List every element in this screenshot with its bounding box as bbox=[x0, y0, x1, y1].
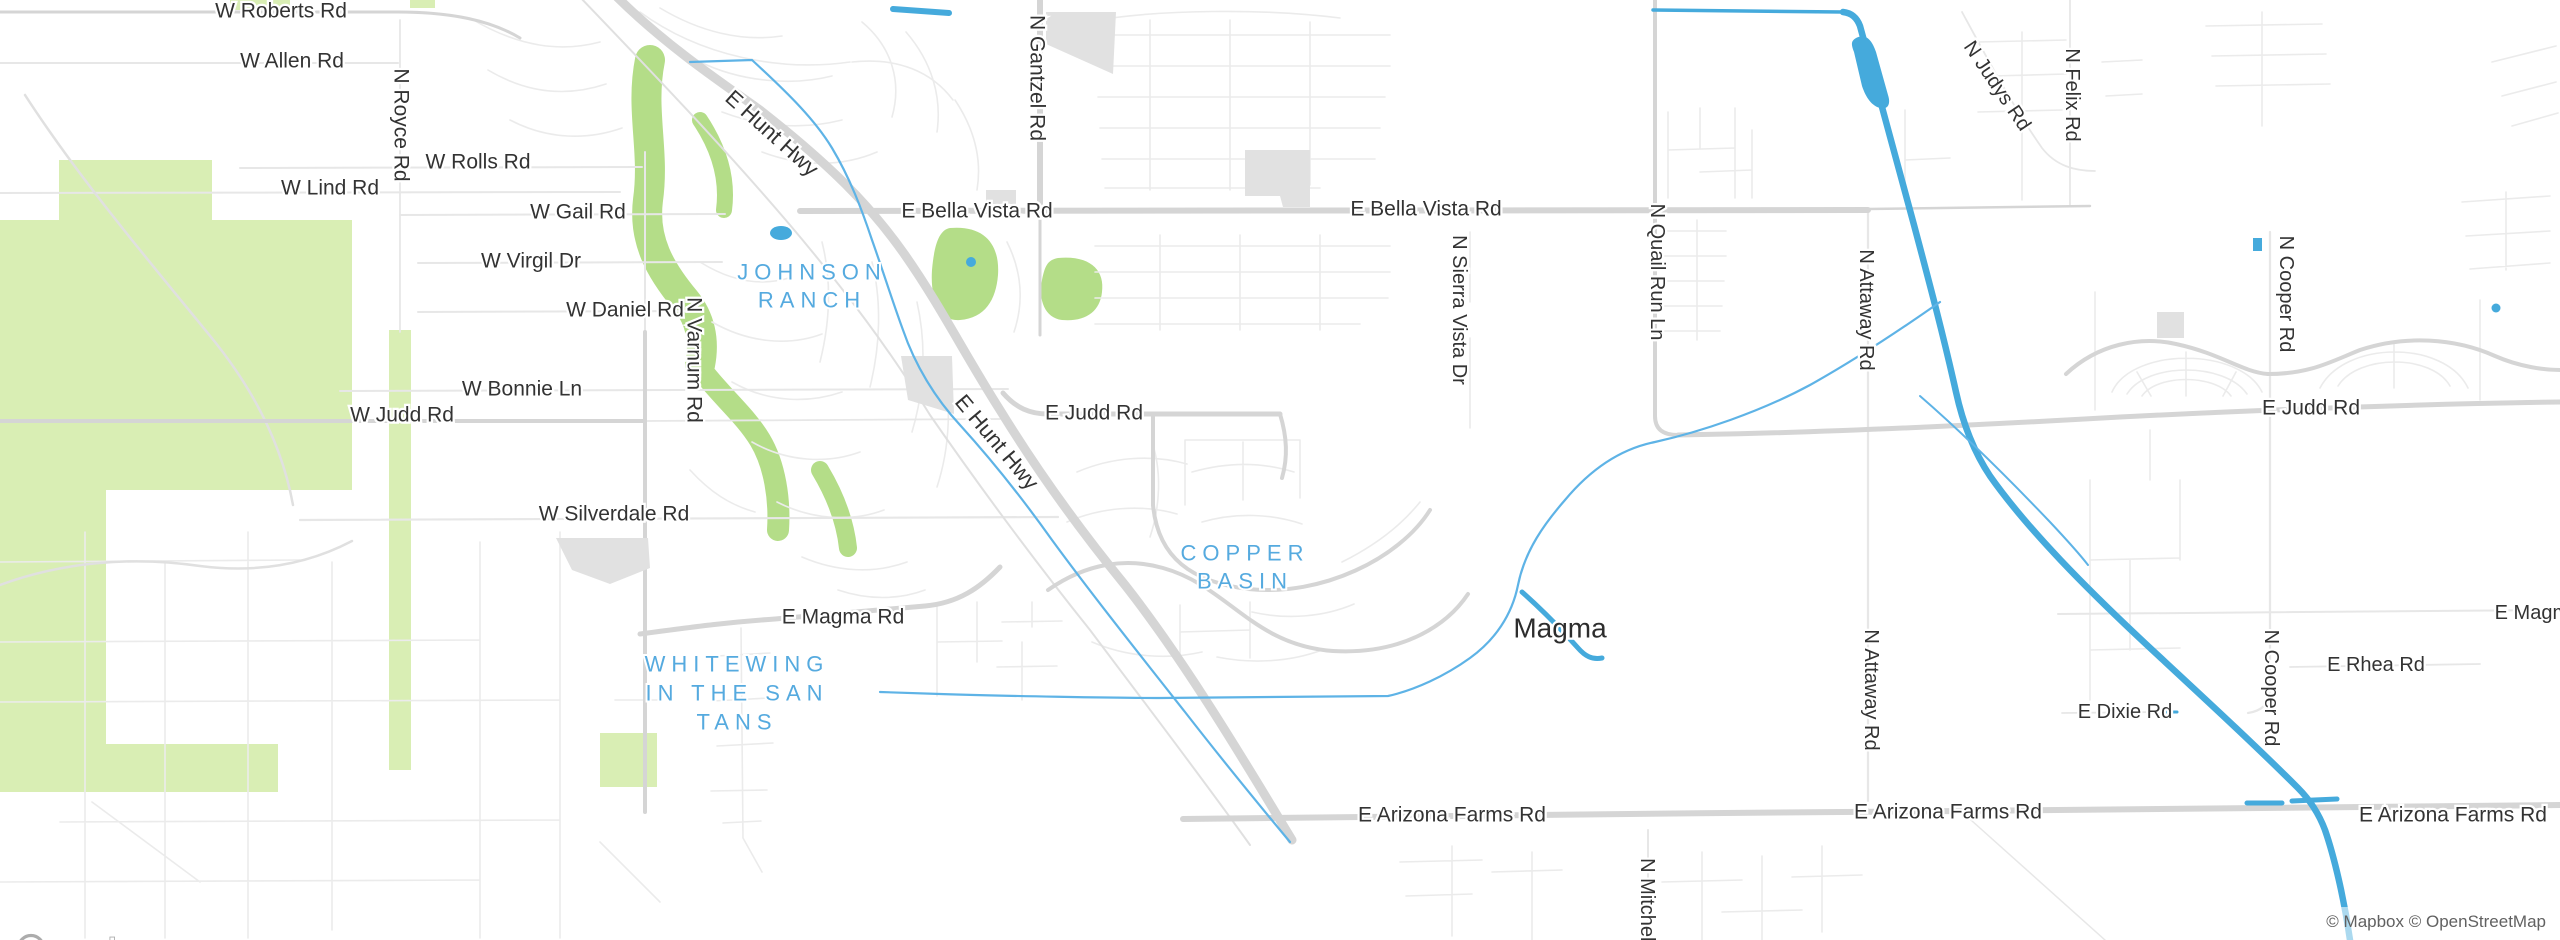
road-label: W Daniel Rd bbox=[566, 299, 684, 322]
road-label: E Arizona Farms Rd bbox=[1854, 801, 2042, 824]
road-label: N Mitchell bbox=[1636, 858, 1658, 940]
pond-johnson-ranch bbox=[770, 226, 792, 240]
road-label: W Lind Rd bbox=[281, 177, 379, 200]
minor-roads bbox=[0, 0, 2560, 940]
road-label: W Bonnie Ln bbox=[462, 378, 582, 401]
road-label: E Judd Rd bbox=[2262, 397, 2360, 420]
map-attribution[interactable]: © Mapbox © OpenStreetMap bbox=[2312, 907, 2560, 940]
road-label: N Gantzel Rd bbox=[1026, 15, 1049, 141]
road-label: E Magma Rd bbox=[2495, 602, 2560, 624]
mapbox-logo-icon bbox=[19, 936, 44, 940]
pond-cooper-north bbox=[2253, 238, 2262, 251]
road-label: E Rhea Rd bbox=[2327, 654, 2425, 676]
road-label: W Roberts Rd bbox=[215, 0, 347, 23]
road-label: N Varnum Rd bbox=[683, 297, 706, 423]
road-label: E Magma Rd bbox=[782, 606, 905, 629]
mapbox-wordmark: mapbox bbox=[50, 933, 160, 940]
road-label: E Judd Rd bbox=[1045, 402, 1143, 425]
area-label-whitewing-in-the-san-tans: IN THE SAN bbox=[645, 681, 828, 706]
canal-road-crossing bbox=[2247, 799, 2337, 803]
place-label: Magma bbox=[1513, 613, 1607, 644]
canal-pond bbox=[1852, 36, 1889, 108]
road-label: W Judd Rd bbox=[350, 404, 454, 427]
pond-right-edge bbox=[2492, 304, 2501, 313]
road-label: W Allen Rd bbox=[240, 50, 344, 73]
area-label-whitewing-in-the-san-tans: WHITEWING bbox=[645, 652, 830, 677]
road-label: N Cooper Rd bbox=[2260, 630, 2282, 747]
area-label-copper-basin: COPPER bbox=[1181, 541, 1310, 566]
canal-top-horizontal bbox=[1653, 10, 1843, 12]
mapbox-logo-graphic: mapbox bbox=[14, 930, 194, 940]
residential-streets bbox=[0, 8, 2558, 940]
map-labels: W Roberts RdW Allen RdN Royce RdW Rolls … bbox=[215, 0, 2560, 940]
road-label: E Bella Vista Rd bbox=[901, 200, 1052, 223]
canal-segment-top-left bbox=[893, 9, 949, 13]
road-label: N Royce Rd bbox=[390, 68, 413, 181]
road-label: N Sierra Vista Dr bbox=[1448, 235, 1470, 385]
road-label: E Bella Vista Rd bbox=[1350, 198, 1501, 221]
map-svg: W Roberts RdW Allen RdN Royce RdW Rolls … bbox=[0, 0, 2560, 940]
road-label: E Arizona Farms Rd bbox=[2359, 804, 2547, 827]
road-label: N Felix Rd bbox=[2061, 48, 2083, 141]
road-label: N Attaway Rd bbox=[1855, 249, 1877, 370]
road-label: N Attaway Rd bbox=[1860, 629, 1882, 750]
road-label: N Judys Rd bbox=[1959, 37, 2035, 135]
area-label-johnson-ranch: RANCH bbox=[758, 288, 866, 313]
road-label: W Rolls Rd bbox=[425, 151, 530, 174]
area-label-copper-basin: BASIN bbox=[1197, 569, 1293, 594]
pond-bella-vista bbox=[966, 257, 976, 267]
road-label: N Quail Run Ln bbox=[1646, 204, 1668, 341]
road-label: N Cooper Rd bbox=[2275, 236, 2297, 353]
area-label-whitewing-in-the-san-tans: TANS bbox=[696, 710, 777, 735]
road-label: E Arizona Farms Rd bbox=[1358, 804, 1546, 827]
road-label: W Gail Rd bbox=[530, 201, 626, 224]
area-label-johnson-ranch: JOHNSON bbox=[737, 260, 887, 285]
road-label: E Dixie Rd bbox=[2078, 701, 2172, 723]
road-label: W Virgil Dr bbox=[481, 250, 581, 273]
water-features bbox=[690, 9, 2501, 940]
road-label: E Hunt Hwy bbox=[720, 85, 823, 181]
map-canvas[interactable]: W Roberts RdW Allen RdN Royce RdW Rolls … bbox=[0, 0, 2560, 940]
road-label: W Silverdale Rd bbox=[539, 503, 690, 526]
